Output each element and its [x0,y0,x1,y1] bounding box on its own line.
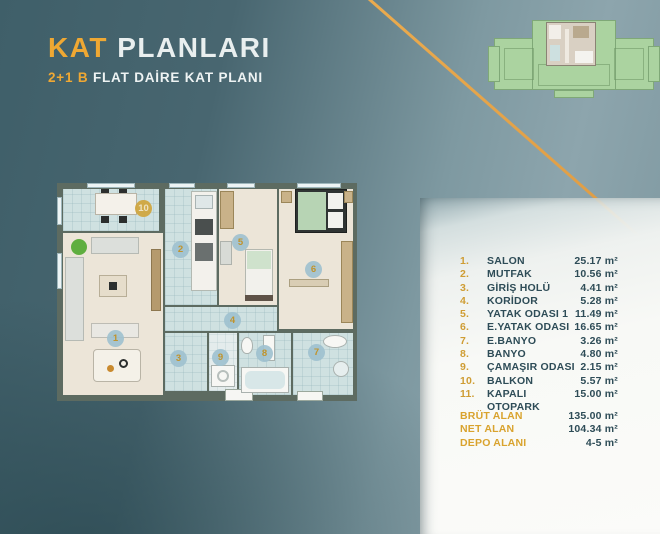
balcony-chair-3 [101,216,109,223]
room-area: 16.65 m² [574,321,618,334]
room-list-row: 8.BANYO4.80 m² [460,348,618,361]
summary-row: NET ALAN104.34 m² [460,423,618,436]
bedroom1-headboard [245,295,273,301]
room-area: 4.41 m² [580,282,618,295]
room-label: YATAK ODASI 1 [487,308,575,321]
room-number: 8. [460,348,487,361]
site-plan-unit-line-1 [504,48,534,80]
room-number: 10. [460,375,487,388]
room-list-row: 4.KORİDOR5.28 m² [460,295,618,308]
room-number: 1. [460,255,487,268]
room-list-row: 10.BALKON5.57 m² [460,375,618,388]
master-bench [289,279,329,287]
room-label: MUTFAK [487,268,574,281]
salon-dining-table [93,349,141,382]
area-summary: BRÜT ALAN135.00 m² NET ALAN104.34 m² DEP… [460,410,618,450]
salon-armchair [91,237,139,254]
page-title: KAT PLANLARI [48,32,271,64]
room-number: 7. [460,335,487,348]
salon-dining-plate [119,359,128,368]
master-bed-pillow-1 [328,193,343,209]
page-subtitle-rest: FLAT DAİRE KAT PLANI [88,70,263,85]
site-plan-highlighted-unit [546,22,596,66]
kitchen-oven [195,243,213,261]
balcony-chair-4 [119,216,127,223]
salon-sofa [65,257,84,341]
summary-row: DEPO ALANI4-5 m² [460,437,618,450]
site-plan-unit-room-3 [550,45,560,61]
room-list-row: 9.ÇAMAŞIR ODASI2.15 m² [460,361,618,374]
salon-dining-bowl [107,365,114,372]
room-label: E.YATAK ODASI [487,321,574,334]
room-area: 10.56 m² [574,268,618,281]
site-plan-left-step [488,46,500,82]
site-plan-unit-room-1 [549,25,561,39]
room-list-row: 7.E.BANYO3.26 m² [460,335,618,348]
room-label: KORİDOR [487,295,580,308]
room-area: 3.26 m² [580,335,618,348]
summary-label: DEPO ALANI [460,437,586,450]
room-area: 5.28 m² [580,295,618,308]
summary-row: BRÜT ALAN135.00 m² [460,410,618,423]
summary-value: 135.00 m² [568,410,618,423]
summary-value: 4-5 m² [586,437,618,450]
room-number: 2. [460,268,487,281]
salon-coffee-table-decor [109,282,117,290]
plan-marker-entry-hall: 3 [170,350,187,367]
room-list-row: 3.GİRİŞ HOLÜ4.41 m² [460,282,618,295]
room-label: ÇAMAŞIR ODASI [487,361,580,374]
room-label: SALON [487,255,574,268]
room-list-row: 2.MUTFAK10.56 m² [460,268,618,281]
window-bedroom-1 [227,183,255,188]
plan-marker-master-bedroom: 6 [305,261,322,278]
site-plan-unit-room-2 [573,26,589,38]
site-plan-right-step [648,46,660,82]
bathroom-tub-inner [245,371,285,389]
window-kitchen [169,183,195,188]
room-label: GİRİŞ HOLÜ [487,282,580,295]
room-corridor [163,305,279,333]
master-bath-sink [323,335,347,348]
site-plan-unit-room-4 [575,51,593,63]
site-plan-bottom-bump [554,90,594,98]
room-area: 5.57 m² [580,375,618,388]
laundry-washer-door [217,370,229,382]
floor-plan: 1 2 3 4 5 6 7 8 9 10 [57,183,357,401]
plan-marker-corridor: 4 [224,312,241,329]
summary-label: NET ALAN [460,423,568,436]
room-list-row: 5.YATAK ODASI 111.49 m² [460,308,618,321]
site-plan-unit-line-3 [538,64,610,86]
master-nightstand-left [281,191,292,203]
master-bed-blanket [298,192,326,230]
room-number: 3. [460,282,487,295]
room-list-row: 1.SALON25.17 m² [460,255,618,268]
master-bath-shower [333,361,349,377]
page-subtitle: 2+1 B FLAT DAİRE KAT PLANI [48,70,271,85]
master-wardrobe [341,241,353,323]
plan-marker-kitchen: 2 [172,241,189,258]
info-panel: 1.SALON25.17 m² 2.MUTFAK10.56 m² 3.GİRİŞ… [420,198,660,534]
room-area: 4.80 m² [580,348,618,361]
bedroom1-wardrobe [220,191,234,229]
kitchen-stove [195,219,213,235]
site-plan-unit-corridor [565,29,569,63]
master-nightstand-right [344,191,353,203]
site-plan-unit-line-2 [614,48,644,80]
window-master-bedroom [297,183,341,188]
window-balcony [87,183,135,188]
room-list: 1.SALON25.17 m² 2.MUTFAK10.56 m² 3.GİRİŞ… [460,255,618,415]
plan-marker-bedroom-1: 5 [232,234,249,251]
header: KAT PLANLARI 2+1 B FLAT DAİRE KAT PLANI [48,32,271,85]
window-balcony-side [57,197,62,225]
room-number: 5. [460,308,487,321]
window-salon [57,253,62,289]
plan-marker-balcony: 10 [135,200,152,217]
plan-marker-bathroom: 8 [256,345,273,362]
room-number: 4. [460,295,487,308]
page-title-highlight: KAT [48,32,108,63]
entry-step-2 [297,391,323,401]
room-number: 9. [460,361,487,374]
room-area: 25.17 m² [574,255,618,268]
room-label: BALKON [487,375,580,388]
salon-plant [71,239,87,255]
bedroom1-desk [220,241,232,265]
plan-marker-salon: 1 [107,330,124,347]
plan-marker-laundry: 9 [212,349,229,366]
bedroom1-bed-blanket [247,251,271,269]
page-title-rest: PLANLARI [108,32,271,63]
bathroom-toilet [241,337,253,354]
salon-tv-unit [151,249,161,311]
plan-marker-master-bathroom: 7 [308,344,325,361]
room-label: E.BANYO [487,335,580,348]
summary-label: BRÜT ALAN [460,410,568,423]
room-area: 11.49 m² [575,308,618,321]
room-list-row: 6.E.YATAK ODASI16.65 m² [460,321,618,334]
summary-value: 104.34 m² [568,423,618,436]
room-number: 6. [460,321,487,334]
kitchen-sink [195,195,213,209]
page-subtitle-highlight: 2+1 B [48,70,88,85]
room-label: BANYO [487,348,580,361]
balcony-table [95,193,137,215]
master-bed-pillow-2 [328,212,343,228]
site-plan-thumbnail [488,8,660,100]
room-area: 2.15 m² [580,361,618,374]
